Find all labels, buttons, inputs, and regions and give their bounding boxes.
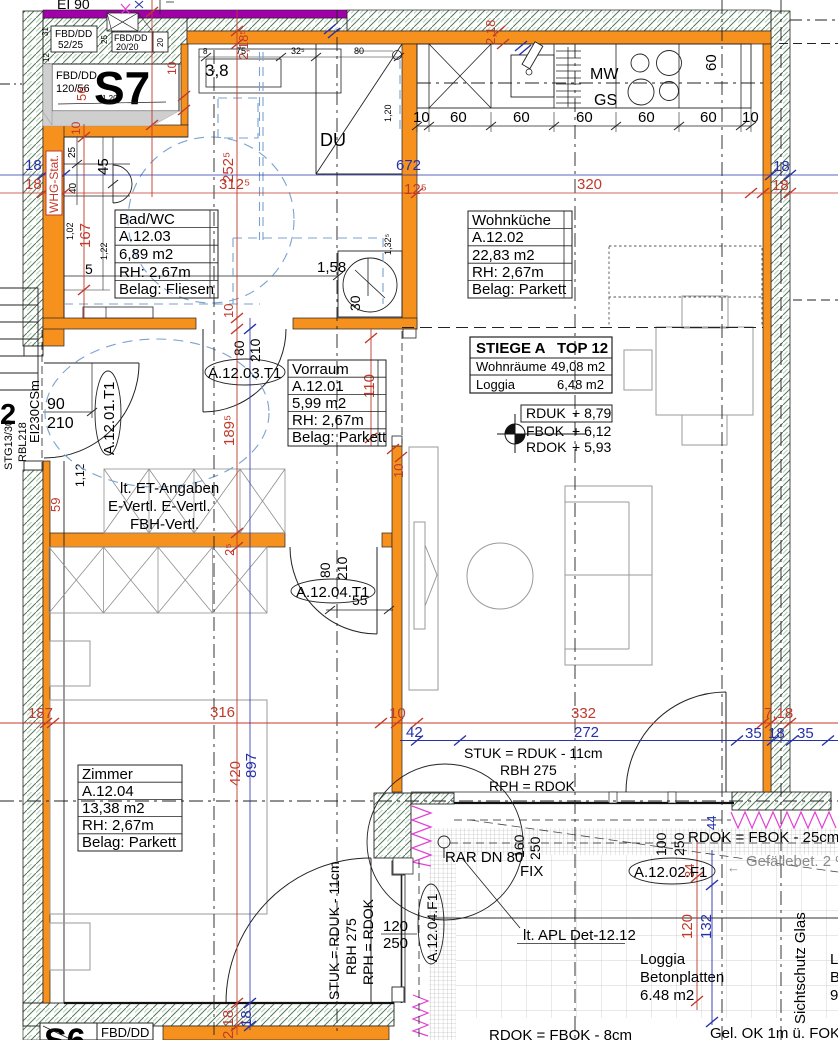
svg-text:Sichtschutz Glas: Sichtschutz Glas bbox=[792, 912, 809, 1024]
svg-text:FBD/DD: FBD/DD bbox=[56, 70, 97, 82]
svg-text:56: 56 bbox=[74, 87, 89, 101]
svg-text:RH: 2,67m: RH: 2,67m bbox=[292, 412, 364, 429]
svg-text:RDOK = FBOK - 25cm: RDOK = FBOK - 25cm bbox=[688, 829, 838, 846]
svg-text:35: 35 bbox=[745, 725, 762, 742]
svg-text:272: 272 bbox=[574, 724, 599, 741]
svg-text:316: 316 bbox=[210, 704, 235, 721]
svg-text:RDOK: RDOK bbox=[526, 439, 567, 455]
svg-text:S7: S7 bbox=[94, 62, 150, 114]
svg-text:60: 60 bbox=[700, 109, 717, 126]
svg-text:10: 10 bbox=[389, 705, 406, 722]
svg-text:22,83 m2: 22,83 m2 bbox=[472, 247, 535, 264]
svg-text:Be: Be bbox=[830, 969, 838, 986]
svg-text:Belag: Parkett: Belag: Parkett bbox=[82, 834, 177, 851]
svg-text:8: 8 bbox=[203, 47, 208, 56]
svg-text:Belag: Fliesen: Belag: Fliesen bbox=[119, 281, 214, 298]
svg-text:+ 5,93: + 5,93 bbox=[572, 439, 612, 455]
svg-text:FIX: FIX bbox=[520, 863, 543, 880]
svg-text:10: 10 bbox=[69, 121, 83, 135]
svg-text:6.48 m2: 6.48 m2 bbox=[640, 987, 694, 1004]
svg-text:FBOK: FBOK bbox=[526, 423, 565, 439]
svg-text:FBH-Vertl.: FBH-Vertl. bbox=[130, 516, 199, 533]
svg-text:12⁵: 12⁵ bbox=[404, 181, 427, 198]
svg-text:18: 18 bbox=[238, 1010, 255, 1027]
svg-text:A.12.04.T1: A.12.04.T1 bbox=[296, 584, 369, 601]
svg-text:252⁵: 252⁵ bbox=[220, 152, 237, 183]
svg-text:189⁵: 189⁵ bbox=[221, 415, 238, 446]
svg-text:RAR DN 80: RAR DN 80 bbox=[445, 849, 523, 866]
svg-text:3,8: 3,8 bbox=[205, 61, 229, 80]
svg-text:EI 90: EI 90 bbox=[57, 0, 90, 12]
svg-text:60: 60 bbox=[450, 109, 467, 126]
svg-text:1,32⁵: 1,32⁵ bbox=[383, 233, 393, 255]
svg-text:FBD/DD: FBD/DD bbox=[101, 1025, 149, 1040]
svg-text:49,08 m2: 49,08 m2 bbox=[551, 359, 605, 374]
svg-text:60: 60 bbox=[638, 109, 655, 126]
svg-text:210: 210 bbox=[47, 415, 74, 432]
svg-text:A.12.01.T1: A.12.01.T1 bbox=[101, 382, 118, 455]
svg-text:18: 18 bbox=[25, 176, 42, 193]
svg-text:6,89 m2: 6,89 m2 bbox=[119, 246, 173, 263]
svg-text:lt. APL Det-12.12: lt. APL Det-12.12 bbox=[523, 927, 636, 944]
svg-text:TOP 12: TOP 12 bbox=[557, 340, 608, 357]
svg-text:20: 20 bbox=[156, 38, 165, 47]
svg-text:Loggia: Loggia bbox=[640, 951, 686, 968]
svg-text:25: 25 bbox=[67, 146, 78, 158]
svg-text:RPH = RDOK: RPH = RDOK bbox=[489, 778, 576, 794]
svg-text:897: 897 bbox=[243, 753, 260, 778]
svg-text:120: 120 bbox=[383, 918, 408, 935]
svg-text:672: 672 bbox=[396, 157, 421, 174]
svg-text:60: 60 bbox=[703, 54, 720, 71]
svg-text:STUK = RDUK - 11cm: STUK = RDUK - 11cm bbox=[326, 861, 342, 1000]
svg-text:Gel. OK 1m ü. FOK: Gel. OK 1m ü. FOK bbox=[710, 1025, 838, 1040]
svg-text:44: 44 bbox=[704, 816, 719, 830]
svg-text:10: 10 bbox=[742, 109, 759, 126]
svg-text:Bad/WC: Bad/WC bbox=[119, 211, 175, 228]
svg-text:210: 210 bbox=[334, 556, 350, 580]
svg-text:RH: 2,67m: RH: 2,67m bbox=[119, 264, 191, 281]
svg-text:STUK = RDUK - 11cm: STUK = RDUK - 11cm bbox=[464, 745, 603, 761]
svg-text:+ 8,79: + 8,79 bbox=[572, 405, 612, 421]
svg-text:18: 18 bbox=[25, 157, 42, 174]
svg-text:1,20: 1,20 bbox=[383, 104, 393, 122]
svg-text:lt. ET-Angaben: lt. ET-Angaben bbox=[120, 480, 219, 497]
svg-text:GS: GS bbox=[594, 92, 617, 109]
svg-text:A.12.02: A.12.02 bbox=[472, 229, 524, 246]
svg-text:2,18: 2,18 bbox=[483, 20, 498, 45]
svg-text:S6: S6 bbox=[44, 1022, 86, 1040]
svg-text:32⁵: 32⁵ bbox=[291, 46, 305, 56]
svg-text:332: 332 bbox=[571, 705, 596, 722]
svg-text:7,18: 7,18 bbox=[764, 705, 793, 722]
svg-text:+ 6,12: + 6,12 bbox=[572, 423, 612, 439]
svg-text:Betonplatten: Betonplatten bbox=[640, 969, 724, 986]
svg-text:RH: 2,67m: RH: 2,67m bbox=[82, 817, 154, 834]
svg-text:WHG-Stat.: WHG-Stat. bbox=[47, 155, 61, 213]
svg-text:Wohnräume: Wohnräume bbox=[476, 359, 547, 374]
svg-text:Zimmer: Zimmer bbox=[82, 766, 133, 783]
svg-text:13,38 m2: 13,38 m2 bbox=[82, 800, 145, 817]
svg-text:120: 120 bbox=[679, 914, 696, 939]
svg-text:RBH 275: RBH 275 bbox=[500, 762, 557, 778]
svg-text:Belag: Parkett: Belag: Parkett bbox=[472, 281, 567, 298]
svg-text:60: 60 bbox=[576, 109, 593, 126]
svg-text:DU: DU bbox=[320, 130, 346, 150]
svg-text:2: 2 bbox=[0, 399, 16, 431]
svg-text:20/20: 20/20 bbox=[116, 42, 139, 52]
svg-text:52/25: 52/25 bbox=[58, 40, 83, 51]
svg-text:A.12.02.F1: A.12.02.F1 bbox=[634, 864, 707, 881]
svg-text:2,18⁵: 2,18⁵ bbox=[236, 29, 251, 60]
svg-text:A.12.04.F1: A.12.04.F1 bbox=[424, 893, 440, 962]
svg-text:RBH 275: RBH 275 bbox=[343, 918, 359, 975]
svg-text:250: 250 bbox=[383, 935, 408, 952]
svg-text:MW: MW bbox=[590, 66, 619, 83]
svg-text:59: 59 bbox=[48, 498, 63, 512]
svg-text:6,48 m2: 6,48 m2 bbox=[557, 377, 604, 392]
svg-text:1,02: 1,02 bbox=[65, 222, 75, 240]
svg-text:A.12.03.T1: A.12.03.T1 bbox=[208, 365, 281, 382]
svg-text:60: 60 bbox=[513, 109, 530, 126]
svg-text:STIEGE A: STIEGE A bbox=[476, 340, 546, 357]
svg-text:2⁵: 2⁵ bbox=[222, 543, 237, 556]
svg-text:35: 35 bbox=[797, 725, 814, 742]
svg-text:25: 25 bbox=[100, 35, 109, 44]
svg-text:Belag: Parkett: Belag: Parkett bbox=[292, 429, 387, 446]
svg-text:10: 10 bbox=[165, 61, 179, 75]
svg-text:80: 80 bbox=[317, 562, 333, 578]
svg-text:←: ← bbox=[727, 860, 740, 875]
svg-text:18: 18 bbox=[768, 725, 785, 742]
svg-text:10: 10 bbox=[391, 464, 406, 478]
svg-text:E-Vertl. E-Vertl.: E-Vertl. E-Vertl. bbox=[108, 498, 211, 515]
svg-text:1,22: 1,22 bbox=[99, 242, 109, 260]
svg-text:5: 5 bbox=[85, 261, 93, 277]
svg-text:42: 42 bbox=[406, 724, 423, 741]
svg-text:RDOK = FBOK - 8cm: RDOK = FBOK - 8cm bbox=[489, 1027, 632, 1040]
svg-text:90: 90 bbox=[47, 396, 65, 413]
svg-text:1,58: 1,58 bbox=[317, 259, 346, 276]
svg-text:A.12.01: A.12.01 bbox=[292, 378, 344, 395]
svg-text:RH: 2,67m: RH: 2,67m bbox=[472, 264, 544, 281]
svg-text:Gefällebet. 2 %: Gefällebet. 2 % bbox=[746, 853, 838, 870]
svg-text:100: 100 bbox=[653, 832, 669, 856]
svg-text:18: 18 bbox=[772, 177, 789, 194]
svg-text:420: 420 bbox=[227, 761, 244, 786]
svg-text:A.12.03: A.12.03 bbox=[119, 228, 171, 245]
svg-text:320: 320 bbox=[577, 176, 602, 193]
svg-text:5,99 m2: 5,99 m2 bbox=[292, 395, 346, 412]
svg-text:2,18: 2,18 bbox=[220, 1010, 237, 1039]
svg-text:10: 10 bbox=[413, 109, 430, 126]
svg-text:Wohnküche: Wohnküche bbox=[472, 212, 551, 229]
svg-text:FBD/DD: FBD/DD bbox=[55, 29, 92, 40]
svg-text:RPH = RDOK: RPH = RDOK bbox=[360, 898, 376, 985]
svg-text:250: 250 bbox=[527, 836, 543, 860]
svg-text:45: 45 bbox=[95, 158, 112, 175]
svg-text:12: 12 bbox=[42, 53, 51, 62]
svg-text:Lo: Lo bbox=[830, 951, 838, 968]
svg-text:31: 31 bbox=[41, 27, 50, 36]
svg-text:80: 80 bbox=[231, 340, 247, 356]
svg-text:132: 132 bbox=[698, 914, 715, 939]
svg-text:Loggia: Loggia bbox=[476, 377, 516, 392]
svg-text:A.12.04: A.12.04 bbox=[82, 783, 134, 800]
svg-text:167: 167 bbox=[77, 223, 94, 248]
svg-text:18: 18 bbox=[773, 158, 790, 175]
svg-text:9.: 9. bbox=[830, 987, 838, 1004]
svg-text:210: 210 bbox=[247, 338, 263, 362]
svg-text:10: 10 bbox=[221, 304, 236, 318]
svg-text:187: 187 bbox=[28, 705, 53, 722]
svg-text:RDUK: RDUK bbox=[526, 405, 566, 421]
svg-text:EI230CSm: EI230CSm bbox=[27, 380, 42, 443]
svg-text:30: 30 bbox=[347, 295, 363, 311]
svg-text:Vorraum: Vorraum bbox=[292, 361, 349, 378]
svg-text:250: 250 bbox=[671, 832, 687, 856]
svg-text:1,20: 1,20 bbox=[102, 94, 118, 103]
